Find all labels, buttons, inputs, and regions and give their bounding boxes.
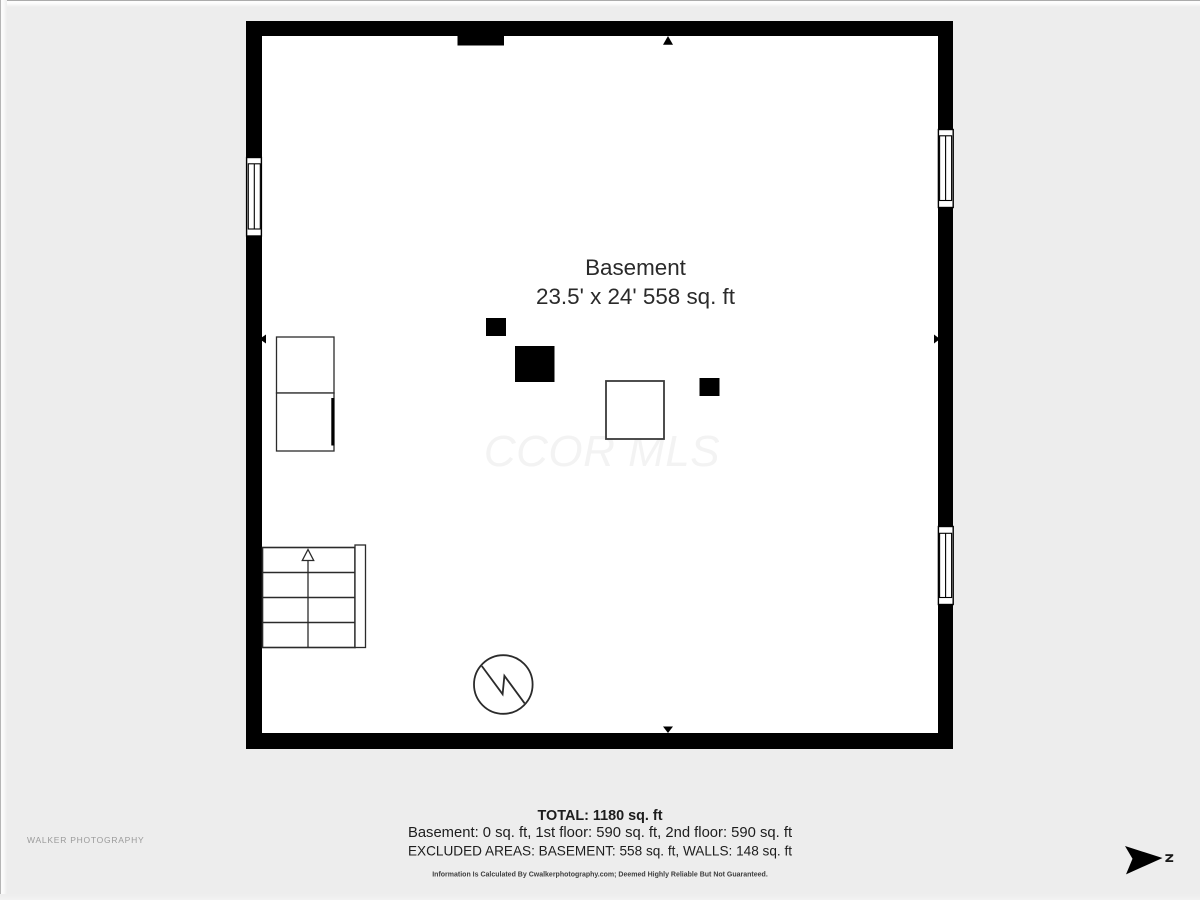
svg-text:CCOR MLS: CCOR MLS	[484, 427, 720, 476]
